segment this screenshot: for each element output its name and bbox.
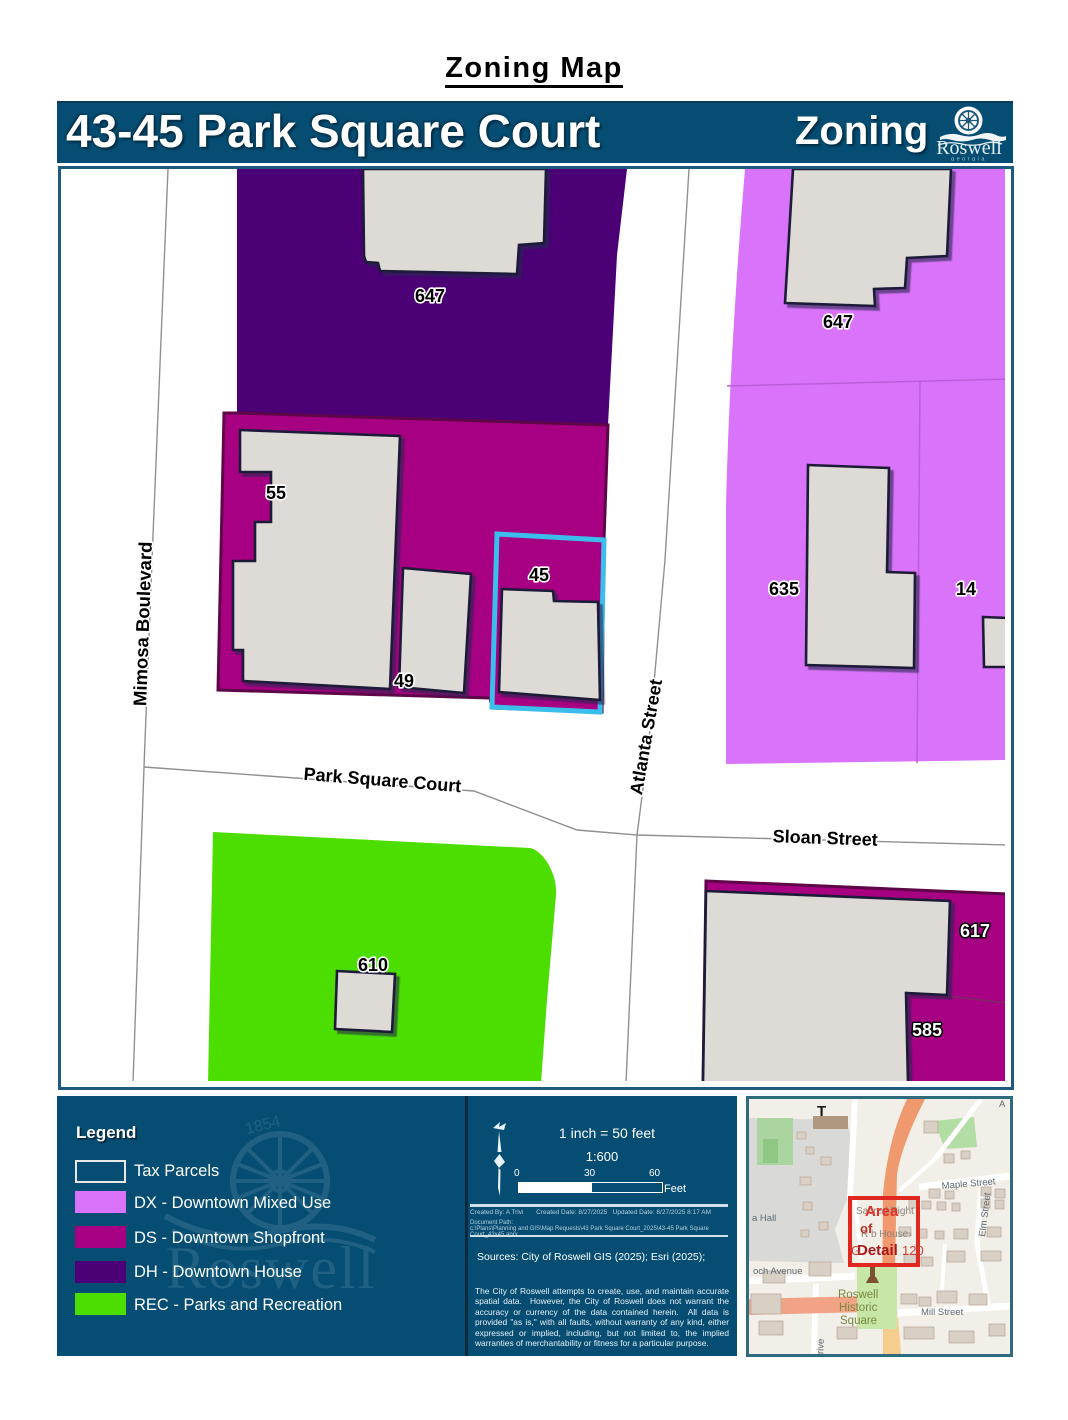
svg-text:617: 617 [960, 921, 990, 941]
svg-text:Square: Square [840, 1315, 877, 1327]
svg-text:120: 120 [902, 1243, 924, 1258]
svg-text:Park Square Court: Park Square Court [303, 764, 462, 796]
svg-text:585: 585 [912, 1020, 942, 1040]
svg-text:Roswell: Roswell [838, 1289, 878, 1301]
svg-text:635: 635 [769, 579, 799, 599]
svg-text:a Hall: a Hall [752, 1213, 776, 1224]
svg-text:14: 14 [956, 579, 976, 599]
svg-text:647: 647 [823, 312, 853, 332]
svg-text:Historic: Historic [839, 1302, 878, 1314]
svg-text:A: A [999, 1099, 1006, 1110]
svg-text:T: T [817, 1103, 826, 1120]
svg-text:55: 55 [266, 483, 286, 503]
svg-text:Mill Street: Mill Street [921, 1307, 964, 1318]
svg-text:45: 45 [529, 565, 549, 585]
svg-text:Area: Area [865, 1203, 899, 1220]
svg-text:Detail: Detail [857, 1242, 898, 1259]
svg-text:610: 610 [358, 955, 388, 975]
svg-text:Sloan Street: Sloan Street [772, 826, 878, 850]
svg-text:Mimosa Boulevard: Mimosa Boulevard [129, 541, 156, 706]
svg-text:Foundere: Foundere [895, 1354, 936, 1357]
svg-text:Drive: Drive [815, 1339, 827, 1357]
svg-text:of: of [860, 1221, 873, 1236]
svg-text:Atlanta Street: Atlanta Street [626, 678, 666, 797]
svg-text:G: G [851, 1243, 861, 1258]
svg-text:georgia: georgia [951, 157, 987, 162]
svg-text:49: 49 [394, 671, 414, 691]
svg-text:och Avenue: och Avenue [753, 1266, 802, 1277]
svg-text:647: 647 [415, 286, 445, 306]
